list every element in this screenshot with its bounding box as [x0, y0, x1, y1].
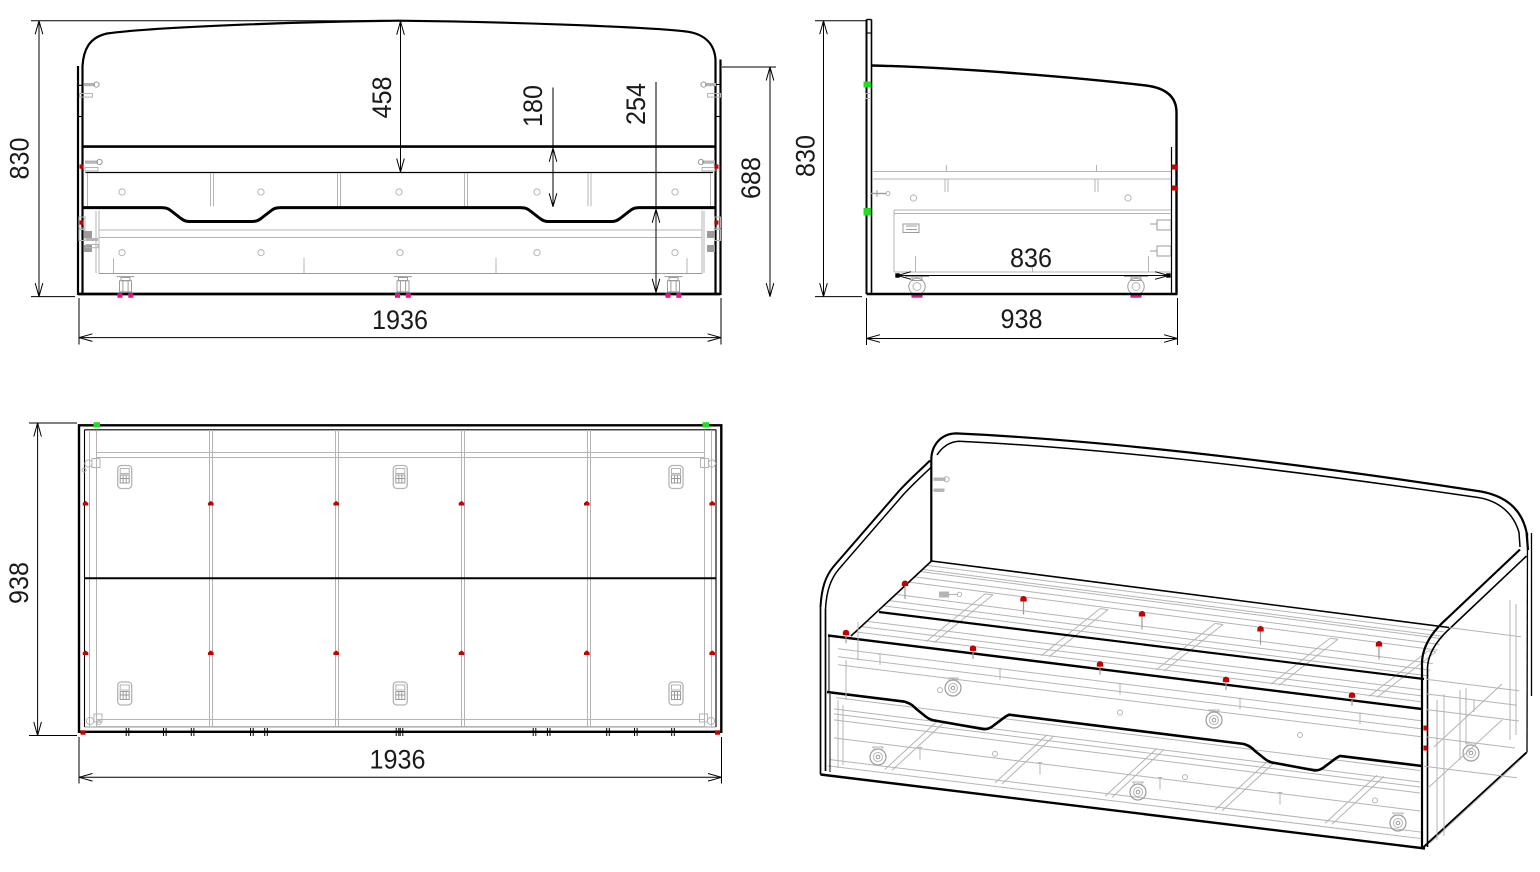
svg-text:254: 254 [621, 83, 651, 125]
svg-text:836: 836 [1010, 243, 1052, 273]
svg-text:938: 938 [1001, 304, 1043, 334]
svg-text:180: 180 [518, 85, 548, 127]
svg-text:688: 688 [736, 157, 766, 199]
svg-text:1936: 1936 [370, 745, 426, 775]
svg-text:938: 938 [4, 562, 34, 604]
svg-text:1936: 1936 [372, 305, 428, 335]
svg-text:830: 830 [4, 138, 34, 180]
svg-text:830: 830 [790, 135, 820, 177]
svg-text:458: 458 [367, 77, 397, 119]
